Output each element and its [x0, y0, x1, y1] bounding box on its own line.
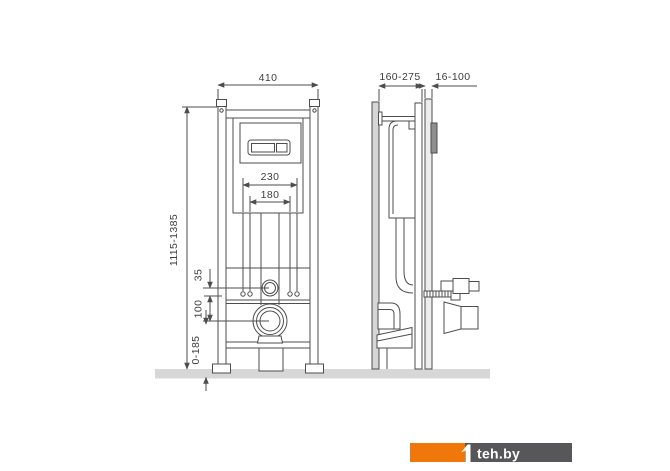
logo-accent-block [410, 443, 465, 462]
dim-label-100: 100 [193, 300, 205, 319]
watermark-logo: teh.by [410, 443, 572, 462]
foot-plate-right [306, 364, 324, 373]
dim-overall-width: 410 [218, 72, 318, 99]
brand-text: teh.by [477, 446, 520, 462]
dim-label-410: 410 [259, 72, 278, 84]
foot-plate-left [213, 364, 231, 373]
dim-label-160-275: 160-275 [379, 71, 420, 83]
technical-drawing: 410 230 180 1115-1385 35 100 0-185 [0, 0, 670, 471]
dim-label-0-185: 0-185 [190, 336, 202, 365]
frame-tube-side [415, 103, 422, 369]
dim-label-35: 35 [193, 269, 205, 281]
drain-connector-side [444, 302, 478, 334]
dim-installation-depth: 160-275 [379, 71, 422, 102]
flush-button-large [252, 144, 275, 153]
water-supply-fitting [441, 279, 479, 294]
drain-elbow-side [377, 303, 412, 369]
front-view [213, 100, 324, 374]
dim-label-16-100: 16-100 [435, 71, 470, 83]
dim-frame-height: 1115-1385 [168, 107, 217, 369]
drain-outlet-port [253, 304, 287, 343]
dim-label-230: 230 [261, 171, 280, 183]
dim-label-180: 180 [261, 189, 280, 201]
flush-button-small [277, 144, 288, 153]
dim-wall-finish: 16-100 [416, 71, 477, 98]
side-view [372, 99, 479, 369]
flush-pipe-side [396, 218, 413, 293]
frame-feet [213, 348, 324, 373]
screenshot-canvas: 410 230 180 1115-1385 35 100 0-185 [0, 0, 670, 471]
cistern-side [389, 121, 415, 218]
flush-plate-side [431, 123, 437, 153]
dim-label-1115-1385: 1115-1385 [168, 214, 180, 266]
dim-foot-adjust: 0-185 [190, 310, 206, 391]
drain-pipe-down [259, 348, 283, 371]
